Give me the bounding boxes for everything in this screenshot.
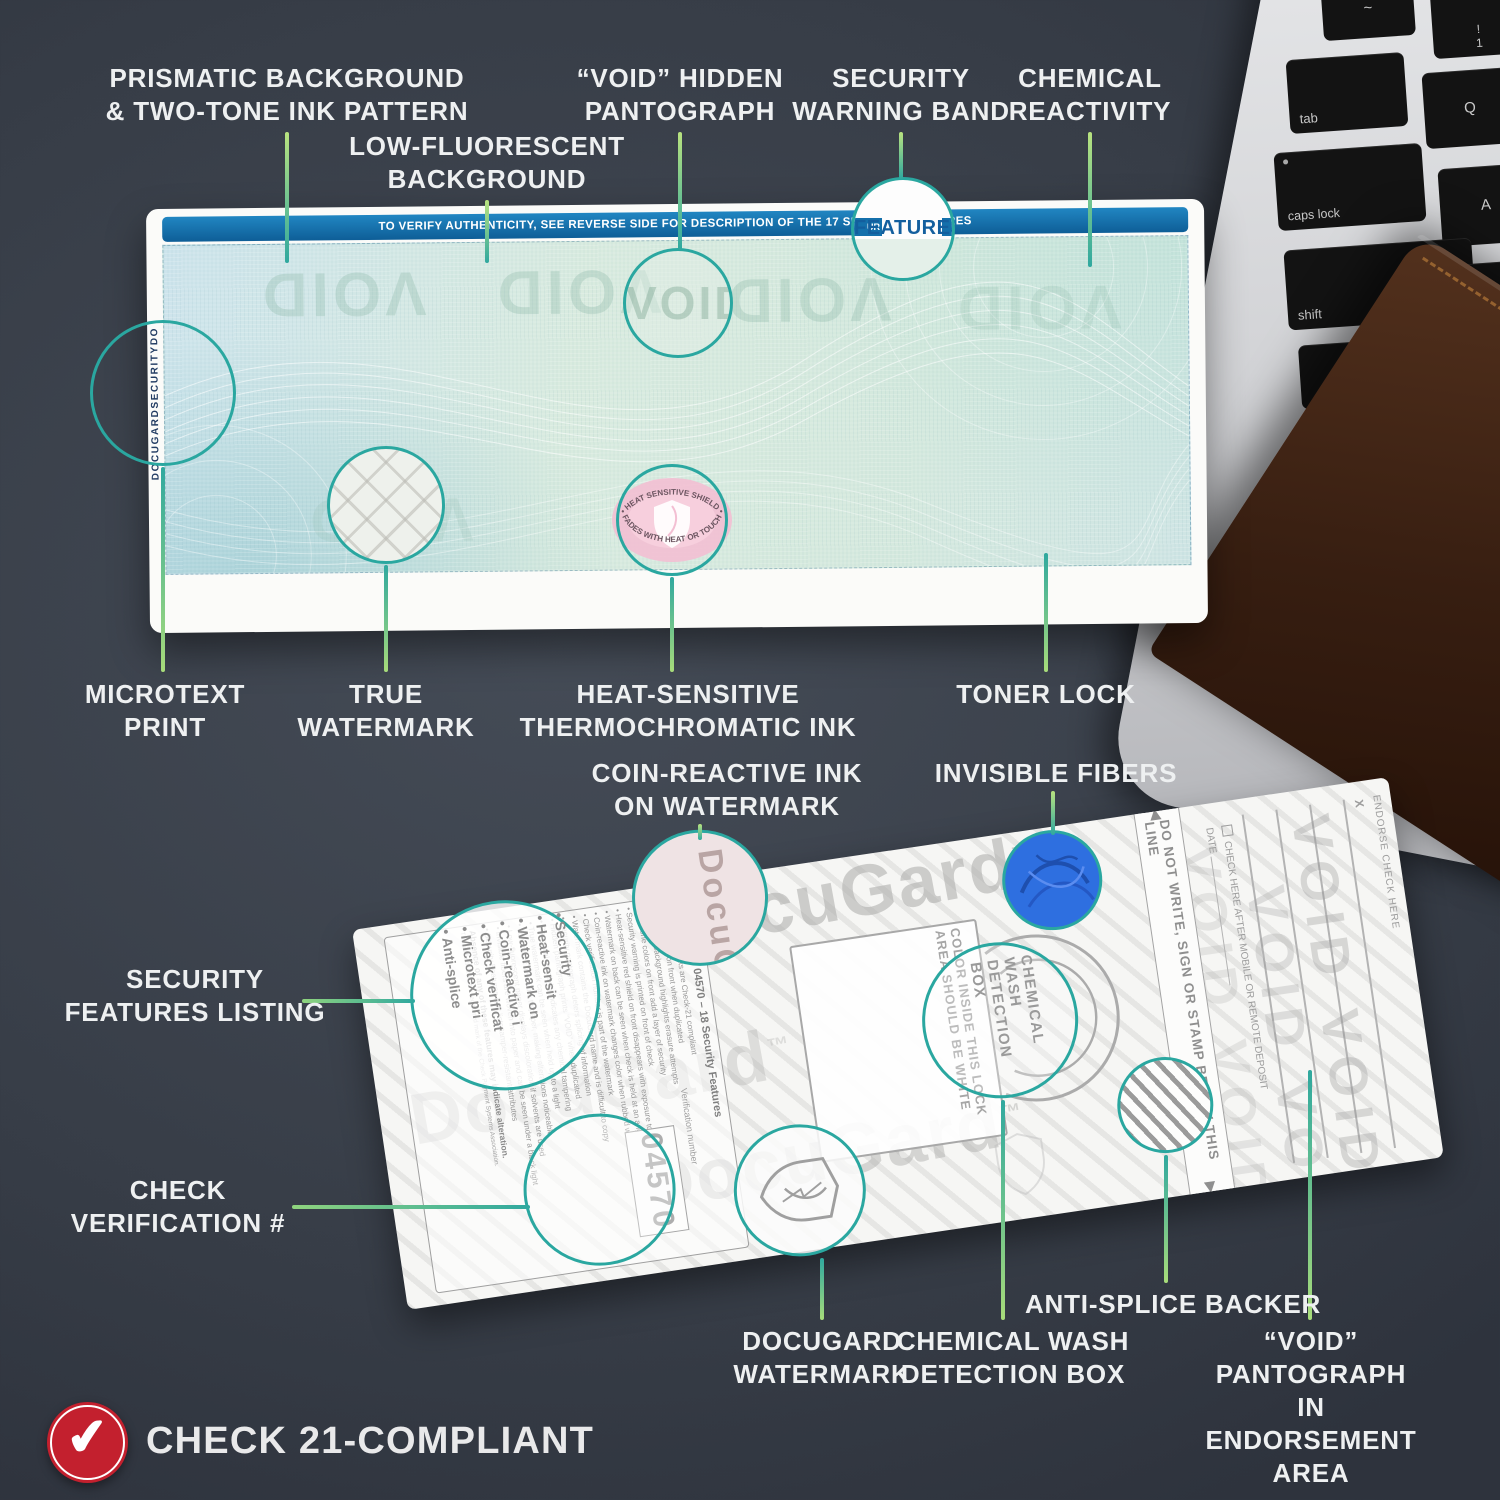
magnifier-features-circle: UR FEATURES [851, 177, 955, 281]
wallet-stitching [1422, 257, 1500, 665]
label-microtext-print: MICROTEXT PRINT [85, 678, 245, 744]
key-shift-label: shift [1297, 306, 1322, 323]
void-pantograph-text: VOID [258, 257, 426, 330]
label-void-hidden-pantograph: “VOID” HIDDEN PANTOGRAPH [577, 62, 784, 128]
callout-line-microtext [161, 467, 165, 672]
label-low-fluorescent: LOW-FLUORESCENT BACKGROUND [349, 130, 625, 196]
features-circle-tint [854, 239, 952, 278]
caps-lock-indicator [1283, 159, 1288, 164]
endorsement-x-mark: X [1352, 799, 1369, 821]
callout-line-low-fluorescent [485, 200, 489, 263]
callout-line-true-watermark [384, 565, 388, 672]
key-a-label: A [1440, 193, 1500, 216]
label-toner-lock: TONER LOCK [956, 678, 1135, 711]
label-docugard-watermark: DOCUGARD WATERMARK [733, 1325, 910, 1391]
label-invisible-fibers: INVISIBLE FIBERS [935, 757, 1178, 790]
key-tab: tab [1286, 52, 1409, 134]
key-q-label: Q [1424, 96, 1500, 119]
docugard-shield-watermark [989, 1127, 1054, 1200]
label-security-features-listing: SECURITY FEATURES LISTING [65, 963, 326, 1029]
chemical-wash-magnified-text: CHEMICAL WASH DETECTION BOX [966, 954, 1052, 1091]
check-back: DocuGard™ DocuGard™ DocuGard™ VOID VOID … [352, 777, 1444, 1310]
callout-line-security-warning [899, 132, 903, 179]
magnifier-void-pantograph-circle: VOID [623, 248, 733, 358]
label-true-watermark: TRUE WATERMARK [297, 678, 474, 744]
label-check-verification: CHECK VERIFICATION # [71, 1174, 285, 1240]
magnifier-microtext-circle [90, 320, 236, 466]
callout-line-prismatic [285, 132, 289, 263]
key-caps-lock-label: caps lock [1287, 206, 1340, 224]
magnifier-heat-shield-circle [616, 464, 728, 576]
magnifier-true-watermark-circle [327, 446, 445, 564]
label-anti-splice-backer: ANTI-SPLICE BACKER [1025, 1288, 1321, 1321]
label-prismatic-background: PRISMATIC BACKGROUND & TWO-TONE INK PATT… [106, 62, 469, 128]
callout-line-anti-splice [1164, 1155, 1168, 1283]
check21-badge-label: CHECK 21-COMPLIANT [146, 1420, 594, 1463]
key-one: !1 [1430, 0, 1500, 59]
label-security-warning-band: SECURITY WARNING BAND [792, 62, 1010, 128]
callout-line-void-endorsement [1308, 1070, 1312, 1320]
label-coin-reactive: COIN-REACTIVE INK ON WATERMARK [592, 757, 863, 823]
callout-line-void-hidden [678, 132, 682, 250]
deposit-checkbox [1221, 824, 1233, 836]
features-magnified-text: FEATURES [854, 217, 952, 240]
key-caps-lock: caps lock [1273, 143, 1426, 231]
callout-line-invisible-fibers [1051, 791, 1055, 835]
banner-arrow-down: ▶ [1202, 1181, 1220, 1195]
key-tilde-label: ~ [1322, 0, 1415, 20]
key-one-label: !1 [1432, 19, 1500, 53]
wallet-edge-highlight [1417, 233, 1500, 651]
docugard-shield-icon [753, 1151, 846, 1233]
callout-line-docugard-watermark [820, 1258, 824, 1320]
coin-reactive-watermark-text: DocuGard [689, 846, 744, 961]
callout-line-coin-reactive [698, 824, 702, 840]
label-chemical-reactivity: CHEMICAL REACTIVITY [1009, 62, 1172, 128]
callout-line-chemical-wash [1001, 1100, 1005, 1320]
date-label: DATE [1203, 827, 1218, 854]
key-tilde: ~ [1320, 0, 1416, 41]
callout-line-heat-sensitive [670, 577, 674, 672]
magnified-listing-lines: SecurityHeat-sensitWatermark onCoin-reac… [401, 896, 603, 1110]
checkmark-icon: ✔ [44, 1404, 131, 1470]
callout-line-toner-lock [1044, 553, 1048, 672]
key-q: Q [1421, 67, 1500, 149]
callout-line-chemical-reactivity [1088, 132, 1092, 267]
label-heat-sensitive: HEAT-SENSITIVE THERMOCHROMATIC INK [520, 678, 857, 744]
void-pantograph-text: VOID [954, 271, 1122, 344]
key-tab-label: tab [1299, 110, 1318, 126]
label-void-endorsement: “VOID” PANTOGRAPH IN ENDORSEMENT AREA [1205, 1325, 1416, 1490]
key-a: A [1437, 163, 1500, 247]
callout-line-verification [292, 1205, 530, 1209]
check21-badge-icon: ✔ [47, 1402, 128, 1483]
label-chemical-wash-box: CHEMICAL WASH DETECTION BOX [897, 1325, 1129, 1391]
